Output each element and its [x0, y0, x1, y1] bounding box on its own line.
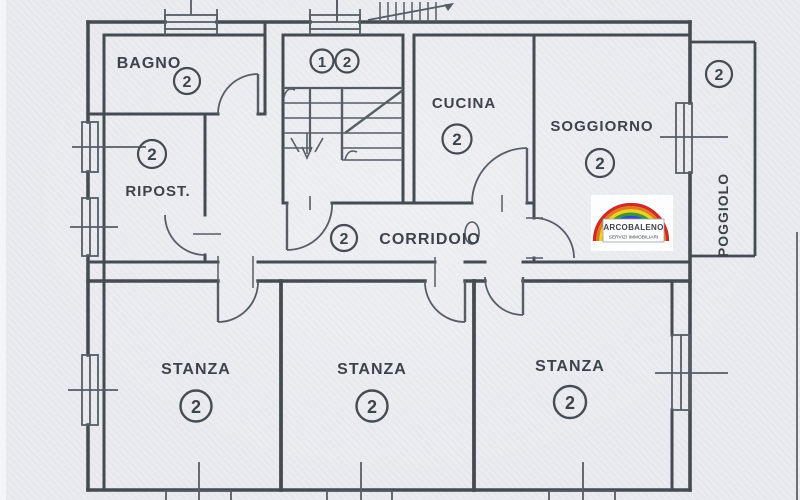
svg-text:2: 2 [595, 154, 604, 173]
unit-badge-cucina: 2 [443, 125, 472, 154]
scan-artifacts [0, 0, 797, 500]
unit-badge-corridoio: 2 [331, 225, 357, 251]
window-left-ripost [70, 198, 118, 256]
agency-logo: ARCOBALENO SERVIZI IMMOBILIARI [591, 195, 673, 251]
window-soggiorno-balcony [660, 103, 728, 173]
svg-text:2: 2 [565, 393, 575, 413]
staircase [283, 88, 403, 210]
interior-walls [88, 22, 690, 490]
svg-text:2: 2 [367, 397, 377, 417]
outer-walls [88, 22, 690, 490]
room-label-bagno: BAGNO [117, 55, 182, 72]
unit-badge-stanza3: 2 [554, 386, 586, 418]
unit-badge-stanza1: 2 [181, 391, 212, 422]
unit-badge-poggiolo: 2 [706, 61, 732, 87]
unit-badge-stairwell-2: 2 [336, 50, 359, 73]
room-label-soggiorno: SOGGIORNO [550, 118, 653, 135]
window-left-bagno [72, 122, 146, 172]
exterior-stair-hatch [337, 0, 454, 22]
scan-edge-left [0, 0, 6, 500]
svg-text:2: 2 [191, 397, 201, 417]
svg-text:2: 2 [343, 54, 351, 71]
up-arrow-icon [444, 3, 454, 11]
floor-plan-scan: BAGNO RIPOST. CUCINA SOGGIORNO CORRIDOIO… [0, 0, 800, 500]
door-stanza1 [218, 256, 258, 322]
window-top-bagno [165, 0, 217, 35]
door-stairwell [287, 203, 332, 250]
unit-badge-stanza2: 2 [357, 391, 388, 422]
svg-text:2: 2 [183, 74, 192, 91]
svg-text:2: 2 [147, 145, 156, 164]
room-label-cucina: CUCINA [432, 95, 496, 112]
unit-badge-bagno: 2 [174, 68, 200, 94]
room-label-poggiolo: POGGIOLO [715, 173, 731, 257]
room-label-stanza1: STANZA [161, 361, 231, 378]
room-label-stanza3: STANZA [535, 358, 605, 375]
window-bottom-stanza3 [549, 462, 615, 500]
room-label-corridoio: CORRIDOIO [379, 231, 480, 248]
unit-badge-ripostiglio: 2 [138, 140, 166, 168]
floor-plan-drawing: BAGNO RIPOST. CUCINA SOGGIORNO CORRIDOIO… [0, 0, 800, 500]
window-left-stanza1 [68, 355, 118, 425]
logo-tagline: SERVIZI IMMOBILIARI [609, 235, 659, 241]
unit-badge-stairwell-1: 1 [311, 50, 334, 73]
svg-text:2: 2 [340, 231, 349, 248]
door-stanza2 [425, 257, 465, 322]
door-soggiorno [526, 218, 574, 258]
svg-text:2: 2 [715, 67, 724, 84]
room-label-ripostiglio: RIPOST. [125, 183, 190, 200]
room-label-stanza2: STANZA [337, 361, 407, 378]
doors [165, 74, 574, 322]
svg-text:1: 1 [318, 54, 326, 71]
window-bottom-stanza2 [327, 462, 392, 500]
door-cucina [472, 148, 527, 212]
door-ripostiglio [165, 215, 221, 255]
logo-name: ARCOBALENO [603, 223, 663, 232]
svg-text:2: 2 [452, 130, 461, 149]
door-bagno [218, 74, 258, 114]
unit-badge-soggiorno: 2 [586, 149, 614, 177]
window-top-stair [310, 9, 360, 35]
window-bottom-stanza1 [166, 462, 231, 500]
